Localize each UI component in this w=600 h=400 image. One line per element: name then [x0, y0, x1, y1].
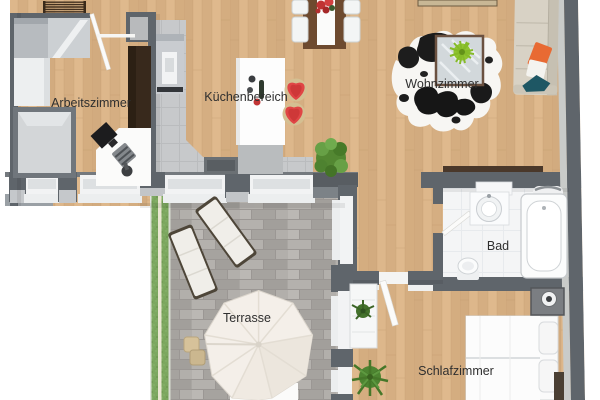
svg-text:Arbeitszimmer: Arbeitszimmer: [51, 96, 131, 110]
svg-text:Bad: Bad: [487, 239, 509, 253]
svg-text:Terrasse: Terrasse: [223, 311, 271, 325]
svg-text:Wohnzimmer: Wohnzimmer: [405, 77, 478, 91]
svg-text:Küchenbereich: Küchenbereich: [204, 90, 287, 104]
svg-text:Schlafzimmer: Schlafzimmer: [418, 364, 494, 378]
